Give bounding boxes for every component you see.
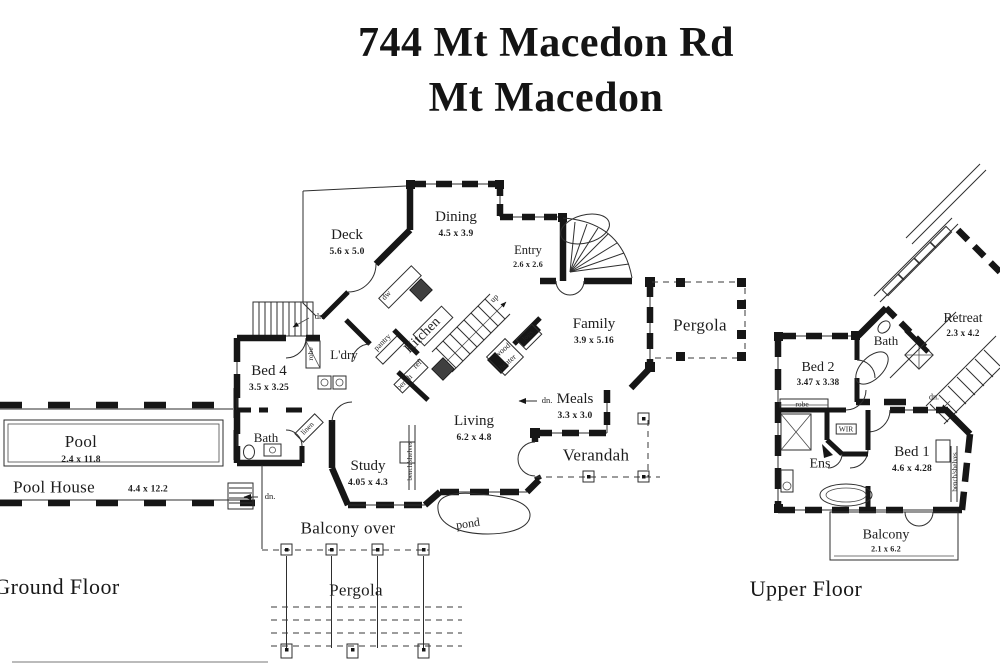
room-label-living: Living 6.2 x 4.8 bbox=[454, 413, 494, 443]
page-title: 744 Mt Macedon Rd Mt Macedon bbox=[358, 16, 734, 125]
floor-plan-page: Kitchen up dw pantry robe bench ref wood… bbox=[0, 0, 1000, 666]
ground-floor-label: Ground Floor bbox=[0, 574, 120, 600]
room-label-bed2: Bed 2 3.47 x 3.38 bbox=[797, 360, 840, 388]
room-label-bed4: Bed 4 3.5 x 3.25 bbox=[249, 363, 289, 393]
tub-icon bbox=[820, 484, 872, 506]
dw-annotation: dw bbox=[380, 288, 393, 301]
pool-house-dims: 4.4 x 12.2 bbox=[128, 481, 168, 494]
pond-shape bbox=[438, 493, 530, 534]
pantry-annotation: pantry bbox=[372, 332, 393, 353]
room-label-meals: Meals 3.3 x 3.0 bbox=[557, 391, 594, 421]
dn-annotation-retreat: dn. bbox=[929, 393, 939, 402]
spiral-stair bbox=[557, 209, 632, 278]
bench-shelves-annotation: bench/shelves bbox=[406, 441, 414, 481]
robe-annotation: robe bbox=[306, 347, 315, 361]
balcony-over-posts bbox=[262, 465, 429, 555]
room-label-pool-house: Pool House bbox=[13, 479, 95, 498]
dn-annotation-meals: dn. bbox=[542, 395, 553, 405]
dn-annotation-pool-house: dn. bbox=[265, 491, 276, 501]
pool-outline bbox=[4, 420, 223, 466]
room-label-retreat: Retreat 2.3 x 4.2 bbox=[944, 311, 983, 339]
dining-entry-walls bbox=[322, 180, 632, 318]
title-line2: Mt Macedon bbox=[358, 71, 734, 126]
entry-door-arc bbox=[556, 281, 570, 295]
room-label-study: Study 4.05 x 4.3 bbox=[348, 458, 388, 488]
pergola-south-grid bbox=[12, 556, 462, 662]
room-label-entry: Entry 2.6 x 2.6 bbox=[513, 244, 543, 270]
room-label-verandah: Verandah bbox=[563, 447, 630, 466]
room-label-bed1: Bed 1 4.6 x 4.28 bbox=[892, 444, 932, 474]
room-label-bath-ground: Bath bbox=[254, 431, 279, 445]
robe-annotation-upper: robe bbox=[795, 400, 808, 409]
room-label-deck: Deck 5.6 x 5.0 bbox=[329, 227, 364, 257]
room-label-pool: Pool 2.4 x 11.8 bbox=[61, 433, 100, 465]
room-label-pergola-south: Pergola bbox=[329, 582, 383, 601]
room-label-wir: WIR bbox=[836, 424, 857, 435]
room-label-balcony-upper: Balcony 2.1 x 6.2 bbox=[863, 527, 910, 554]
study-walls bbox=[332, 402, 440, 505]
room-label-pergola-east: Pergola bbox=[673, 317, 727, 336]
ref-annotation: ref bbox=[411, 358, 424, 371]
kitchen-label: Kitchen bbox=[402, 315, 444, 357]
room-label-dining: Dining 4.5 x 3.9 bbox=[435, 209, 477, 239]
balcony-over-label: Balcony over bbox=[301, 520, 396, 539]
title-line1: 744 Mt Macedon Rd bbox=[358, 16, 734, 71]
room-label-ens: Ens bbox=[810, 456, 831, 471]
linen-annotation: linen bbox=[299, 420, 316, 437]
french-door-arc bbox=[518, 442, 535, 459]
upper-floor-label: Upper Floor bbox=[750, 576, 863, 602]
room-label-ldry: L'dry bbox=[330, 348, 358, 362]
upper-bath-walls bbox=[850, 308, 933, 402]
basin-icon bbox=[264, 444, 281, 456]
upper-bench-shelves-annotation: bench/shelves bbox=[951, 452, 959, 492]
balcony-door-arc bbox=[905, 512, 919, 526]
ldry-fixtures bbox=[318, 376, 346, 389]
toilet-icon bbox=[244, 445, 255, 459]
wood-heater bbox=[487, 318, 542, 375]
room-label-bath-upper: Bath bbox=[874, 334, 899, 348]
stairs-nw-dn bbox=[253, 302, 313, 336]
room-label-family: Family 3.9 x 5.16 bbox=[573, 316, 616, 346]
dn-annotation-nw: dn. bbox=[315, 311, 326, 321]
